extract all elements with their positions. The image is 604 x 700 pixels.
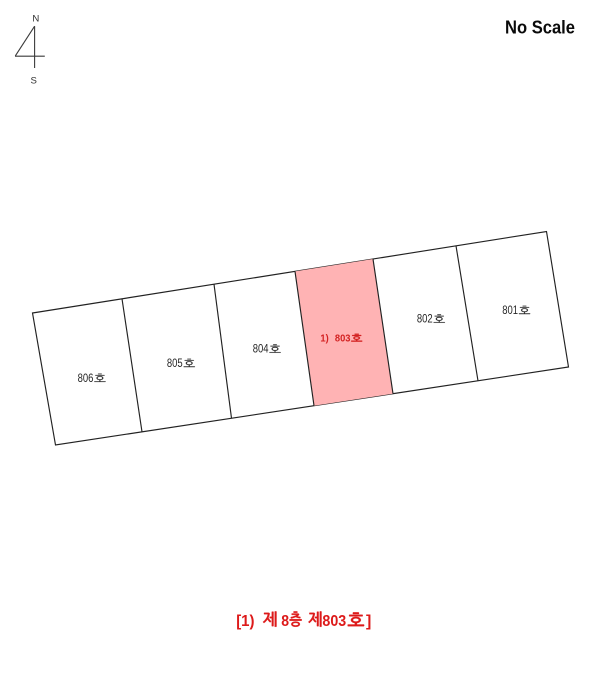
svg-text:No Scale: No Scale [505,18,575,38]
svg-text:804: 804 [253,343,269,356]
svg-text:803: 803 [322,613,346,630]
svg-text:N: N [32,13,39,24]
svg-text:]: ] [366,613,371,630]
svg-text:801: 801 [502,304,518,317]
svg-text:805: 805 [167,357,183,370]
svg-text:1): 1) [320,333,328,344]
svg-text:[1): [1) [236,613,254,630]
svg-text:S: S [30,75,36,86]
svg-text:8: 8 [281,613,289,630]
svg-text:806: 806 [78,372,94,385]
svg-text:803: 803 [335,333,351,344]
svg-text:802: 802 [417,313,433,326]
